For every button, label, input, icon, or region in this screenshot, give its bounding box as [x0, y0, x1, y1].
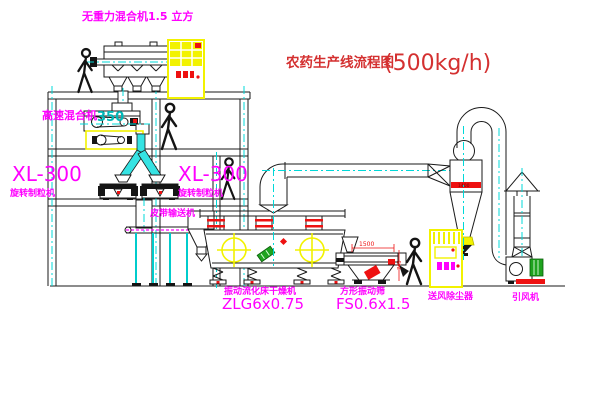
- label-dryer-model: ZLG6x0.75: [222, 295, 304, 313]
- belt-conveyor: [125, 227, 200, 286]
- label-granulator-left-model: XL-300: [12, 162, 82, 186]
- label-granulator-right-name: 旋转制粒机: [177, 187, 223, 199]
- label-granulator-left-name: 旋转制粒机: [9, 187, 55, 199]
- label-belt-conveyor: 皮带输送机: [149, 207, 195, 219]
- process-flow-drawing: 1400: [0, 0, 600, 403]
- y-chute: [115, 134, 165, 182]
- drawing-title: 农药生产线流程图: [285, 54, 394, 71]
- label-dust-collector: 送风除尘器: [427, 290, 474, 302]
- person-roof: [78, 49, 91, 92]
- granulator-left: [98, 184, 138, 200]
- dryer-mounts: [210, 268, 344, 284]
- label-sieve-model: FS0.6x1.5: [336, 295, 410, 313]
- vibrating-sieve: 1500 745: [336, 237, 409, 284]
- induced-draft-fan: [506, 257, 545, 284]
- granulator-right: [140, 184, 180, 200]
- label-induced-fan: 引风机: [512, 291, 539, 303]
- sieve-height-dim: 745: [397, 260, 403, 270]
- sieve-width-dim: 1500: [359, 241, 374, 248]
- person-second-floor: [162, 104, 176, 149]
- control-cabinet-top: [168, 40, 204, 98]
- label-zero-gravity-mixer: 无重力混合机1.5 立方: [81, 9, 193, 23]
- person-ground: [407, 239, 421, 284]
- label-high-speed-mixer: 高速混合机: [42, 108, 97, 122]
- drawing-title-capacity: (500kg/h): [384, 51, 491, 76]
- fluid-bed-dryer: [200, 209, 345, 284]
- label-high-speed-mixer-size: 350: [97, 110, 124, 125]
- cad-canvas: 1400: [0, 0, 600, 403]
- control-cabinet-right: [430, 230, 462, 287]
- label-granulator-right-model: XL-300: [178, 162, 248, 186]
